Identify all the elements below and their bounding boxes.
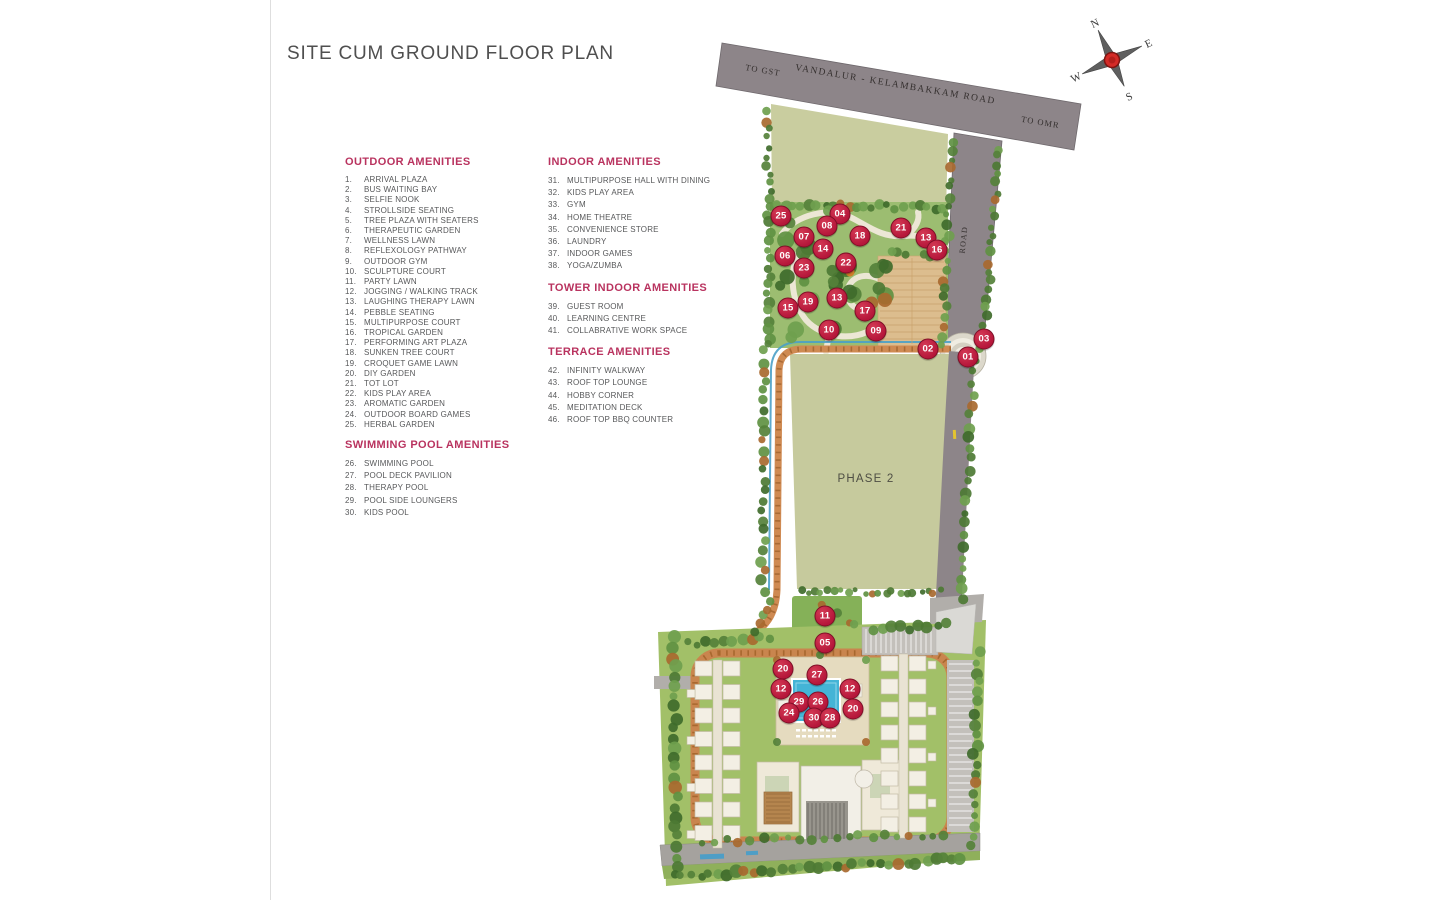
legend-item-label: KIDS POOL [364,507,409,519]
legend-item-number: 44. [548,390,567,402]
legend-section: SWIMMING POOL AMENITIES26.SWIMMING POOL2… [345,439,555,519]
legend-item: 43.ROOF TOP LOUNGE [548,377,758,389]
legend-item-label: PERFORMING ART PLAZA [364,338,467,348]
legend-section: OUTDOOR AMENITIES1.ARRIVAL PLAZA2.BUS WA… [345,156,555,430]
legend-column-1: OUTDOOR AMENITIES1.ARRIVAL PLAZA2.BUS WA… [345,156,555,519]
legend-item-label: GYM [567,199,586,211]
swimming-pool [792,679,840,722]
legend-heading: TOWER INDOOR AMENITIES [548,282,758,294]
legend-item-label: SWIMMING POOL [364,458,434,470]
legend-item-number: 3. [345,195,364,205]
legend-item-label: OUTDOOR GYM [364,257,428,267]
legend-item-number: 19. [345,359,364,369]
legend-item-number: 26. [345,458,364,470]
legend-item-number: 11. [345,277,364,287]
legend-heading: SWIMMING POOL AMENITIES [345,439,555,451]
legend-section: TERRACE AMENITIES42.INFINITY WALKWAY43.R… [548,346,758,426]
legend-item-label: STROLLSIDE SEATING [364,206,454,216]
legend-item: 10.SCULPTURE COURT [345,267,555,277]
legend-item-label: POOL SIDE LOUNGERS [364,495,458,507]
legend-item: 20.DIY GARDEN [345,369,555,379]
legend-item-number: 16. [345,328,364,338]
legend-item-label: LEARNING CENTRE [567,313,646,325]
legend-item: 1.ARRIVAL PLAZA [345,175,555,185]
legend-item-number: 38. [548,260,567,272]
legend-item: 21.TOT LOT [345,379,555,389]
legend-item-number: 28. [345,482,364,494]
legend-item-number: 31. [548,175,567,187]
legend-item: 42.INFINITY WALKWAY [548,365,758,377]
legend-item: 18.SUNKEN TREE COURT [345,348,555,358]
legend-item: 27.POOL DECK PAVILION [345,470,555,482]
legend-item-label: JOGGING / WALKING TRACK [364,287,478,297]
legend-item-number: 9. [345,257,364,267]
legend-item: 16.TROPICAL GARDEN [345,328,555,338]
legend-item-number: 24. [345,410,364,420]
legend-item: 4.STROLLSIDE SEATING [345,206,555,216]
legend-item: 12.JOGGING / WALKING TRACK [345,287,555,297]
legend-item-number: 5. [345,216,364,226]
legend-item-number: 6. [345,226,364,236]
legend-item: 24.OUTDOOR BOARD GAMES [345,410,555,420]
legend-item-number: 40. [548,313,567,325]
legend-item: 13.LAUGHING THERAPY LAWN [345,297,555,307]
legend-item-number: 1. [345,175,364,185]
legend-item-label: PARTY LAWN [364,277,417,287]
legend-item: 30.KIDS POOL [345,507,555,519]
legend-heading: OUTDOOR AMENITIES [345,156,555,168]
compass-e: E [1143,37,1154,51]
legend-item-number: 22. [345,389,364,399]
legend-item-label: LAUGHING THERAPY LAWN [364,297,475,307]
legend-item: 37.INDOOR GAMES [548,248,758,260]
legend-item-number: 41. [548,325,567,337]
legend-item-label: ARRIVAL PLAZA [364,175,428,185]
compass-w: W [1069,70,1084,86]
legend-item: 19.CROQUET GAME LAWN [345,359,555,369]
compass-s: S [1124,90,1135,103]
legend-item-number: 17. [345,338,364,348]
phase2-label: PHASE 2 [838,473,895,485]
legend-item-label: SELFIE NOOK [364,195,420,205]
legend-item-label: POOL DECK PAVILION [364,470,452,482]
legend-item-label: KIDS PLAY AREA [567,187,634,199]
legend-item-label: PEBBLE SEATING [364,308,435,318]
legend-item-number: 39. [548,301,567,313]
legend-item-number: 7. [345,236,364,246]
legend-item-number: 32. [548,187,567,199]
legend-item: 11.PARTY LAWN [345,277,555,287]
legend-item-number: 30. [345,507,364,519]
legend-item-label: INFINITY WALKWAY [567,365,645,377]
legend-item-label: ROOF TOP LOUNGE [567,377,647,389]
legend-item-number: 35. [548,224,567,236]
legend-item-number: 20. [345,369,364,379]
legend-item: 31.MULTIPURPOSE HALL WITH DINING [548,175,758,187]
legend-item-number: 25. [345,420,364,430]
legend-item-label: AROMATIC GARDEN [364,399,445,409]
legend-item-number: 14. [345,308,364,318]
legend-item-number: 27. [345,470,364,482]
legend-item-label: REFLEXOLOGY PATHWAY [364,246,467,256]
legend-item-label: KIDS PLAY AREA [364,389,431,399]
legend-section: TOWER INDOOR AMENITIES39.GUEST ROOM40.LE… [548,282,758,338]
legend-item: 38.YOGA/ZUMBA [548,260,758,272]
site-map: TO GST VANDALUR - KELAMBAKKAM ROAD TO OM… [0,0,1440,900]
legend-item-label: HERBAL GARDEN [364,420,435,430]
legend-item-label: OUTDOOR BOARD GAMES [364,410,470,420]
legend-item-number: 10. [345,267,364,277]
pool-deck [776,657,869,745]
legend-item-number: 33. [548,199,567,211]
legend-item-number: 15. [345,318,364,328]
legend-item-label: THERAPEUTIC GARDEN [364,226,461,236]
legend-item-number: 34. [548,212,567,224]
legend-item: 6.THERAPEUTIC GARDEN [345,226,555,236]
legend-item-label: GUEST ROOM [567,301,624,313]
legend-item: 8.REFLEXOLOGY PATHWAY [345,246,555,256]
legend-item: 15.MULTIPURPOSE COURT [345,318,555,328]
legend-item: 5.TREE PLAZA WITH SEATERS [345,216,555,226]
legend-item-label: INDOOR GAMES [567,248,633,260]
legend-item-number: 18. [345,348,364,358]
legend-item-label: MEDITATION DECK [567,402,643,414]
legend-item-label: YOGA/ZUMBA [567,260,622,272]
legend-item-label: TOT LOT [364,379,399,389]
legend-item-label: DIY GARDEN [364,369,416,379]
legend-item: 7.WELLNESS LAWN [345,236,555,246]
phase2-field: PHASE 2 [790,354,951,589]
legend-section: INDOOR AMENITIES31.MULTIPURPOSE HALL WIT… [548,156,758,273]
legend-item-number: 36. [548,236,567,248]
legend-item: 36.LAUNDRY [548,236,758,248]
legend-item-label: TREE PLAZA WITH SEATERS [364,216,479,226]
legend-item: 14.PEBBLE SEATING [345,308,555,318]
legend-item-number: 29. [345,495,364,507]
legend-item: 26.SWIMMING POOL [345,458,555,470]
legend-item: 35.CONVENIENCE STORE [548,224,758,236]
legend-item-number: 8. [345,246,364,256]
legend-item-number: 13. [345,297,364,307]
legend-item: 28.THERAPY POOL [345,482,555,494]
legend-item: 23.AROMATIC GARDEN [345,399,555,409]
legend-item: 25.HERBAL GARDEN [345,420,555,430]
legend-item: 41.COLLABRATIVE WORK SPACE [548,325,758,337]
legend-item: 46.ROOF TOP BBQ COUNTER [548,414,758,426]
legend-heading: TERRACE AMENITIES [548,346,758,358]
parking-east-strip [947,660,974,832]
legend-item: 34.HOME THEATRE [548,212,758,224]
legend-item-number: 21. [345,379,364,389]
legend-item: 17.PERFORMING ART PLAZA [345,338,555,348]
legend-item: 32.KIDS PLAY AREA [548,187,758,199]
legend-heading: INDOOR AMENITIES [548,156,758,168]
legend-item-label: BUS WAITING BAY [364,185,437,195]
legend-item-number: 37. [548,248,567,260]
legend-item: 33.GYM [548,199,758,211]
legend-item: 44.HOBBY CORNER [548,390,758,402]
legend-item-label: CONVENIENCE STORE [567,224,659,236]
legend-item-label: MULTIPURPOSE HALL WITH DINING [567,175,710,187]
legend-item-number: 45. [548,402,567,414]
legend-item-number: 2. [345,185,364,195]
legend-item-label: LAUNDRY [567,236,607,248]
legend-item: 39.GUEST ROOM [548,301,758,313]
legend-item-label: THERAPY POOL [364,482,429,494]
legend-item-number: 42. [548,365,567,377]
site-plan-page: SITE CUM GROUND FLOOR PLAN TO GST VANDAL… [0,0,1440,900]
legend-item-label: COLLABRATIVE WORK SPACE [567,325,687,337]
legend-item-label: HOME THEATRE [567,212,632,224]
legend-item-label: HOBBY CORNER [567,390,634,402]
legend-item: 9.OUTDOOR GYM [345,257,555,267]
legend-item-label: SUNKEN TREE COURT [364,348,455,358]
legend-item: 3.SELFIE NOOK [345,195,555,205]
legend-item: 40.LEARNING CENTRE [548,313,758,325]
legend-item-label: TROPICAL GARDEN [364,328,443,338]
legend-item: 45.MEDITATION DECK [548,402,758,414]
legend-item-label: WELLNESS LAWN [364,236,435,246]
legend-item-number: 12. [345,287,364,297]
legend-item: 2.BUS WAITING BAY [345,185,555,195]
legend-item-number: 46. [548,414,567,426]
legend-item: 29.POOL SIDE LOUNGERS [345,495,555,507]
legend-item-number: 4. [345,206,364,216]
legend-item-number: 23. [345,399,364,409]
compass-n: N [1089,17,1101,31]
legend-item-label: SCULPTURE COURT [364,267,446,277]
legend-item: 22.KIDS PLAY AREA [345,389,555,399]
legend-item-number: 43. [548,377,567,389]
legend-item-label: CROQUET GAME LAWN [364,359,458,369]
internal-road [948,352,962,614]
legend-item-label: ROOF TOP BBQ COUNTER [567,414,673,426]
legend-item-label: MULTIPURPOSE COURT [364,318,461,328]
legend-column-2: INDOOR AMENITIES31.MULTIPURPOSE HALL WIT… [548,156,758,426]
